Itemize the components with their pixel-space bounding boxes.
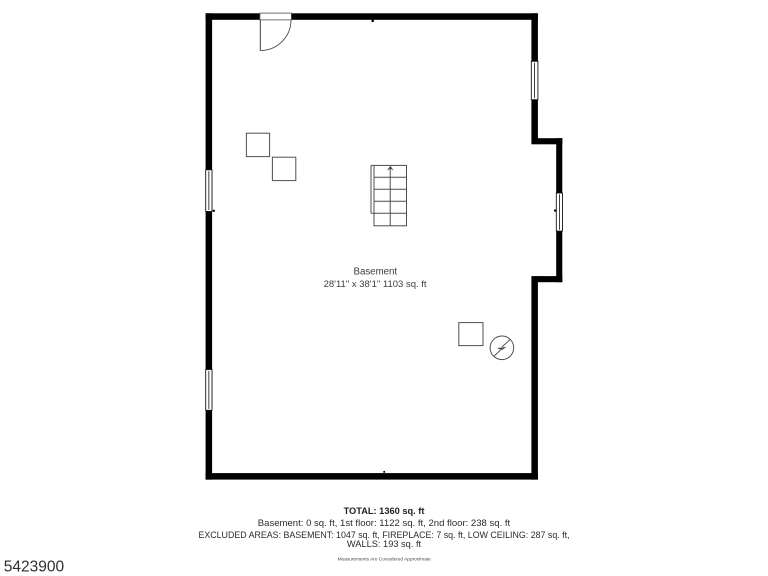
svg-text:5423900: 5423900 <box>4 558 65 575</box>
svg-text:Basement: 0 sq. ft, 1st floor:: Basement: 0 sq. ft, 1st floor: 1122 sq. … <box>258 518 511 529</box>
svg-text:TOTAL: 1360 sq. ft: TOTAL: 1360 sq. ft <box>344 506 425 516</box>
svg-text:Basement: Basement <box>353 266 397 277</box>
svg-text:28'11" x 38'1" 1103 sq. ft: 28'11" x 38'1" 1103 sq. ft <box>324 279 427 290</box>
svg-text:Measurements Are Considered Ap: Measurements Are Considered Approximate <box>338 557 432 563</box>
svg-text:WALLS: 193 sq. ft: WALLS: 193 sq. ft <box>347 539 422 549</box>
